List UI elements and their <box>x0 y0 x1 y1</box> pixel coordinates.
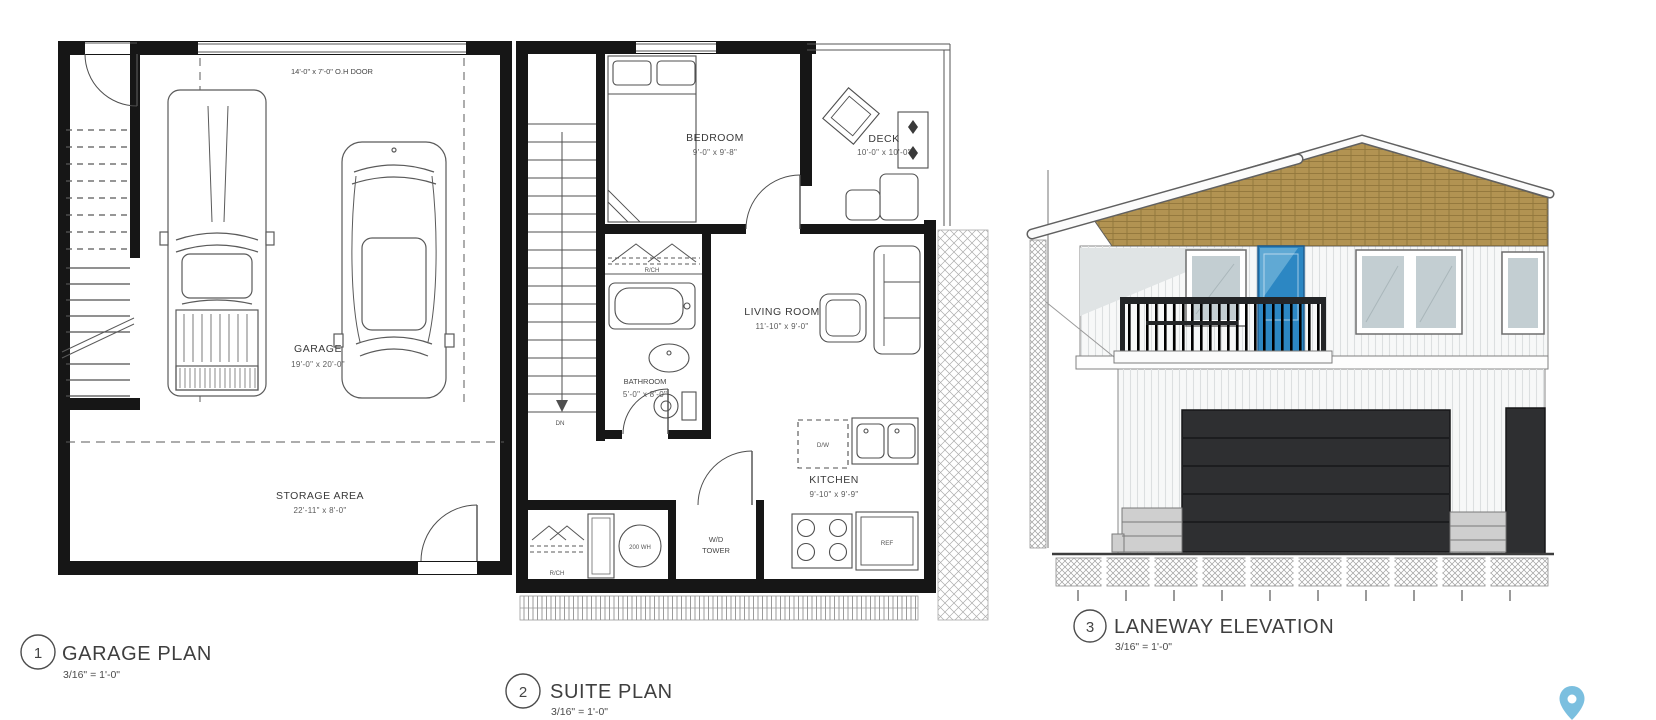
map-pin-icon <box>1560 686 1585 720</box>
garage-exit-opening <box>418 562 477 574</box>
bathroom-right-wall <box>702 224 711 439</box>
utility-wall <box>528 500 668 510</box>
lower-closet-rod-dashed <box>530 546 584 552</box>
detail-number: 1 <box>34 645 42 662</box>
suite-plan-titleblock: 2 SUITE PLAN 3/16" = 1'-0" <box>506 674 673 718</box>
truck-body <box>168 90 266 396</box>
railing-post-right <box>1321 297 1326 357</box>
garage-room-label: GARAGE <box>294 343 342 355</box>
kitchen-dims: 9'-10" x 9'-9" <box>810 490 859 499</box>
suite-left-wall <box>516 41 528 593</box>
stove <box>792 514 852 568</box>
garage-stair-wall <box>130 41 140 258</box>
bathtub-faucet <box>684 303 690 309</box>
detail-number: 2 <box>519 684 527 701</box>
storage-room-dims: 22'-11" x 8'-0" <box>293 506 346 515</box>
bed-pillow-left <box>613 61 651 85</box>
garage-plan-title: GARAGE PLAN <box>62 643 212 665</box>
wd-tower-label-2: TOWER <box>702 546 730 555</box>
bed-illustration <box>608 56 696 222</box>
foundation-right <box>1450 512 1506 552</box>
deck-sofa-section <box>846 190 880 220</box>
wd-room-left-wall <box>668 500 676 593</box>
sink-drain-left <box>864 429 868 433</box>
railing-balusters <box>1125 304 1321 351</box>
elevation-title: LANEWAY ELEVATION <box>1114 616 1334 638</box>
bedroom-door <box>746 175 800 229</box>
balcony-railing <box>1120 297 1326 357</box>
bathroom-dims: 5'-0" x 8'-0" <box>623 390 667 399</box>
garage-door-main <box>1182 410 1450 552</box>
wd-room-door <box>698 451 752 505</box>
double-window <box>1356 250 1462 334</box>
suite-mid-wall-right <box>800 224 924 234</box>
ground-tick-marks <box>1078 590 1510 601</box>
ohdoor-label: 14'-0" x 7'-0" O.H DOOR <box>291 67 374 76</box>
suite-plan-scale: 3/16" = 1'-0" <box>551 706 608 718</box>
balcony-slab <box>1114 351 1332 363</box>
deck-sofa <box>880 174 918 220</box>
elevation-scale: 3/16" = 1'-0" <box>1115 641 1172 653</box>
suite-stair-wall <box>596 41 605 441</box>
suite-stair-arrow: DN <box>555 132 568 427</box>
bathroom-label: BATHROOM <box>624 377 667 386</box>
truck-mirror-right <box>266 232 274 245</box>
dishwasher-label: D/W <box>817 442 829 449</box>
garage-stair-treads-upper-dashed <box>66 130 130 249</box>
railing-post-left <box>1120 297 1125 357</box>
garage-entry-opening <box>85 42 137 54</box>
garage-exit-door <box>421 505 477 561</box>
exit-door-swing-arc <box>421 505 477 561</box>
foundation-left <box>1122 508 1182 552</box>
truck-mirror-left <box>160 232 168 245</box>
drawing-sheet: 14'-0" x 7'-0" O.H DOOR GARAGE 19'-0" x … <box>0 0 1656 720</box>
suite-bottom-wall <box>516 579 936 593</box>
railing-top-rail <box>1120 297 1326 304</box>
suite-mid-wall-left <box>596 224 746 234</box>
bathroom-sink-faucet <box>667 351 671 355</box>
bedroom-deck-wall <box>800 41 812 186</box>
upper-closet: R/CH <box>608 244 700 274</box>
bedroom-label: BEDROOM <box>686 132 744 144</box>
garage-room-dims: 19'-0" x 20'-0" <box>291 360 345 369</box>
stair-arrow-head <box>556 400 568 412</box>
ground-hatch-band <box>1056 558 1548 586</box>
garage-stair-stub-wall <box>58 398 140 410</box>
closet-rod-dashed <box>608 258 700 264</box>
right-window-glass <box>1508 258 1538 328</box>
upper-closet-label: R/CH <box>645 268 660 274</box>
car-body <box>342 142 446 398</box>
lower-closet-label: R/CH <box>550 571 565 577</box>
garage-plan-titleblock: 1 GARAGE PLAN 3/16" = 1'-0" <box>21 635 212 681</box>
storage-room-label: STORAGE AREA <box>276 490 364 502</box>
double-window-glass-right <box>1416 256 1456 328</box>
car-antenna <box>392 148 396 152</box>
bedroom-door-arc <box>746 175 800 229</box>
map-pin-hole <box>1568 695 1577 704</box>
entry-door-swing-arc <box>85 54 137 106</box>
armchair <box>820 294 866 342</box>
garage-plan-scale: 3/16" = 1'-0" <box>63 669 120 681</box>
refrigerator-label: REF <box>881 540 894 547</box>
garage-stair-treads-lower <box>66 268 130 396</box>
car-mirror-right <box>445 334 454 347</box>
wd-door-arc <box>698 451 752 505</box>
wd-room-right-wall <box>756 500 764 593</box>
bathroom-sink <box>649 344 689 372</box>
bathroom-bottom-wall-a <box>605 430 622 439</box>
adjacent-fence-strip <box>1030 240 1046 548</box>
laneway-elevation: 3 LANEWAY ELEVATION 3/16" = 1'-0" <box>1030 139 1554 653</box>
suite-plan-title: SUITE PLAN <box>550 681 673 703</box>
bathroom-bottom-wall-b <box>668 430 711 439</box>
lower-closet-hangers <box>532 526 584 540</box>
architectural-drawing: 14'-0" x 7'-0" O.H DOOR GARAGE 19'-0" x … <box>0 0 1656 720</box>
garage-entry-door <box>85 54 137 106</box>
bedroom-dims: 9'-0" x 9'-8" <box>693 148 737 157</box>
closet-hanger-symbols <box>612 244 696 262</box>
living-room-furniture <box>820 246 920 354</box>
sink-drain-right <box>895 429 899 433</box>
railing-mid-rail <box>1146 321 1238 325</box>
water-heater-label: 200 WH <box>629 545 651 551</box>
stair-dn-label: DN <box>555 420 565 427</box>
car-illustration <box>334 142 454 398</box>
suite-plan: DN R/CH <box>506 41 988 718</box>
garage-door-side <box>1506 408 1545 554</box>
elevation-titleblock: 3 LANEWAY ELEVATION 3/16" = 1'-0" <box>1074 610 1334 653</box>
kitchen-sink-counter <box>852 418 918 464</box>
kitchen-label: KITCHEN <box>809 474 859 486</box>
living-room-dims: 11'-10" x 9'-0" <box>755 322 808 331</box>
foundation-left-step <box>1112 534 1124 552</box>
right-window <box>1502 252 1544 334</box>
truck-illustration <box>160 90 274 396</box>
garage-left-wall <box>58 41 70 575</box>
garage-right-wall <box>500 41 512 575</box>
suite-right-wall <box>924 220 936 593</box>
utility-zone: R/CH 200 WH W/D TOWER <box>530 514 730 578</box>
garage-plan: 14'-0" x 7'-0" O.H DOOR GARAGE 19'-0" x … <box>21 41 512 681</box>
living-room-label: LIVING ROOM <box>744 306 820 318</box>
toilet-tank <box>682 392 696 420</box>
wd-tower-label-1: W/D <box>709 535 724 544</box>
bathroom-fixtures <box>609 283 696 420</box>
deck-dims: 10'-0" x 10'-0" <box>857 148 911 157</box>
suite-exterior-paver-strip <box>938 230 988 620</box>
garage-stair-break-line <box>62 318 134 358</box>
deck-label: DECK <box>868 133 899 145</box>
detail-number: 3 <box>1086 619 1094 636</box>
bed-pillow-right <box>657 61 695 85</box>
sofa <box>874 246 920 354</box>
